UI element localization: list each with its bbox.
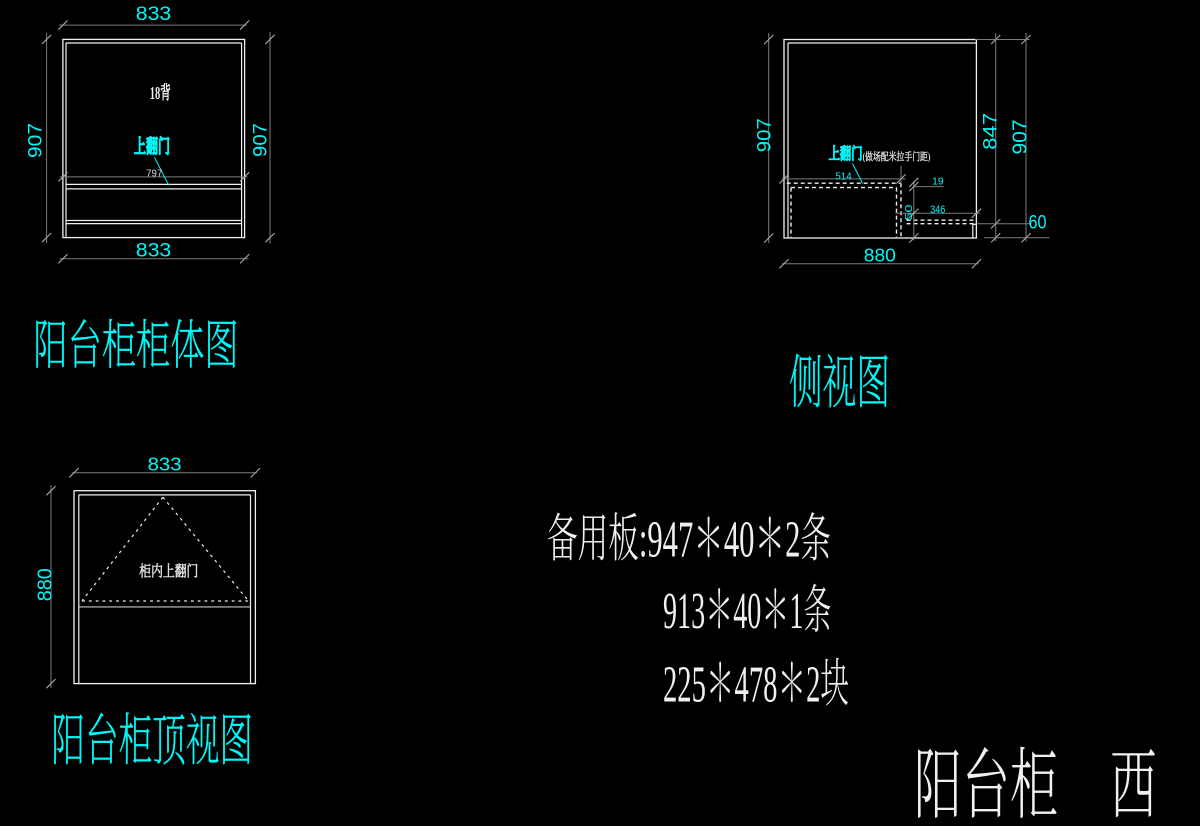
svg-text:907: 907 <box>250 123 271 157</box>
svg-text:阳台柜: 阳台柜 <box>914 724 1058 826</box>
svg-text:833: 833 <box>136 3 172 25</box>
svg-text:514: 514 <box>835 170 852 182</box>
svg-text:阳台柜顶视图: 阳台柜顶视图 <box>52 697 254 777</box>
svg-text:880: 880 <box>864 246 896 266</box>
svg-text:833: 833 <box>148 454 182 474</box>
svg-text:880: 880 <box>34 568 56 601</box>
svg-text:797: 797 <box>146 168 162 179</box>
svg-text:19: 19 <box>932 176 944 187</box>
svg-text:备用板:947＊40＊2条: 备用板:947＊40＊2条 <box>547 497 831 572</box>
svg-text:柜内上翻门: 柜内上翻门 <box>139 560 198 581</box>
svg-text:907: 907 <box>754 118 775 152</box>
svg-text:(做场配米拉手门距): (做场配米拉手门距) <box>863 149 931 164</box>
svg-text:50: 50 <box>904 204 915 221</box>
svg-text:225＊478＊2块: 225＊478＊2块 <box>663 642 849 717</box>
svg-text:西: 西 <box>1110 724 1157 826</box>
svg-text:907: 907 <box>25 123 46 158</box>
svg-text:847: 847 <box>981 113 1002 150</box>
svg-text:346: 346 <box>930 204 945 216</box>
svg-text:18背: 18背 <box>150 79 171 105</box>
svg-text:上翻门: 上翻门 <box>134 132 170 159</box>
svg-text:833: 833 <box>136 241 172 262</box>
svg-text:侧视图: 侧视图 <box>789 336 890 420</box>
svg-text:60: 60 <box>1029 213 1047 234</box>
svg-text:913＊40＊1条: 913＊40＊1条 <box>663 568 832 643</box>
svg-text:907: 907 <box>1009 120 1031 155</box>
svg-text:阳台柜柜体图: 阳台柜柜体图 <box>34 304 239 380</box>
svg-text:上翻门: 上翻门 <box>829 141 863 164</box>
